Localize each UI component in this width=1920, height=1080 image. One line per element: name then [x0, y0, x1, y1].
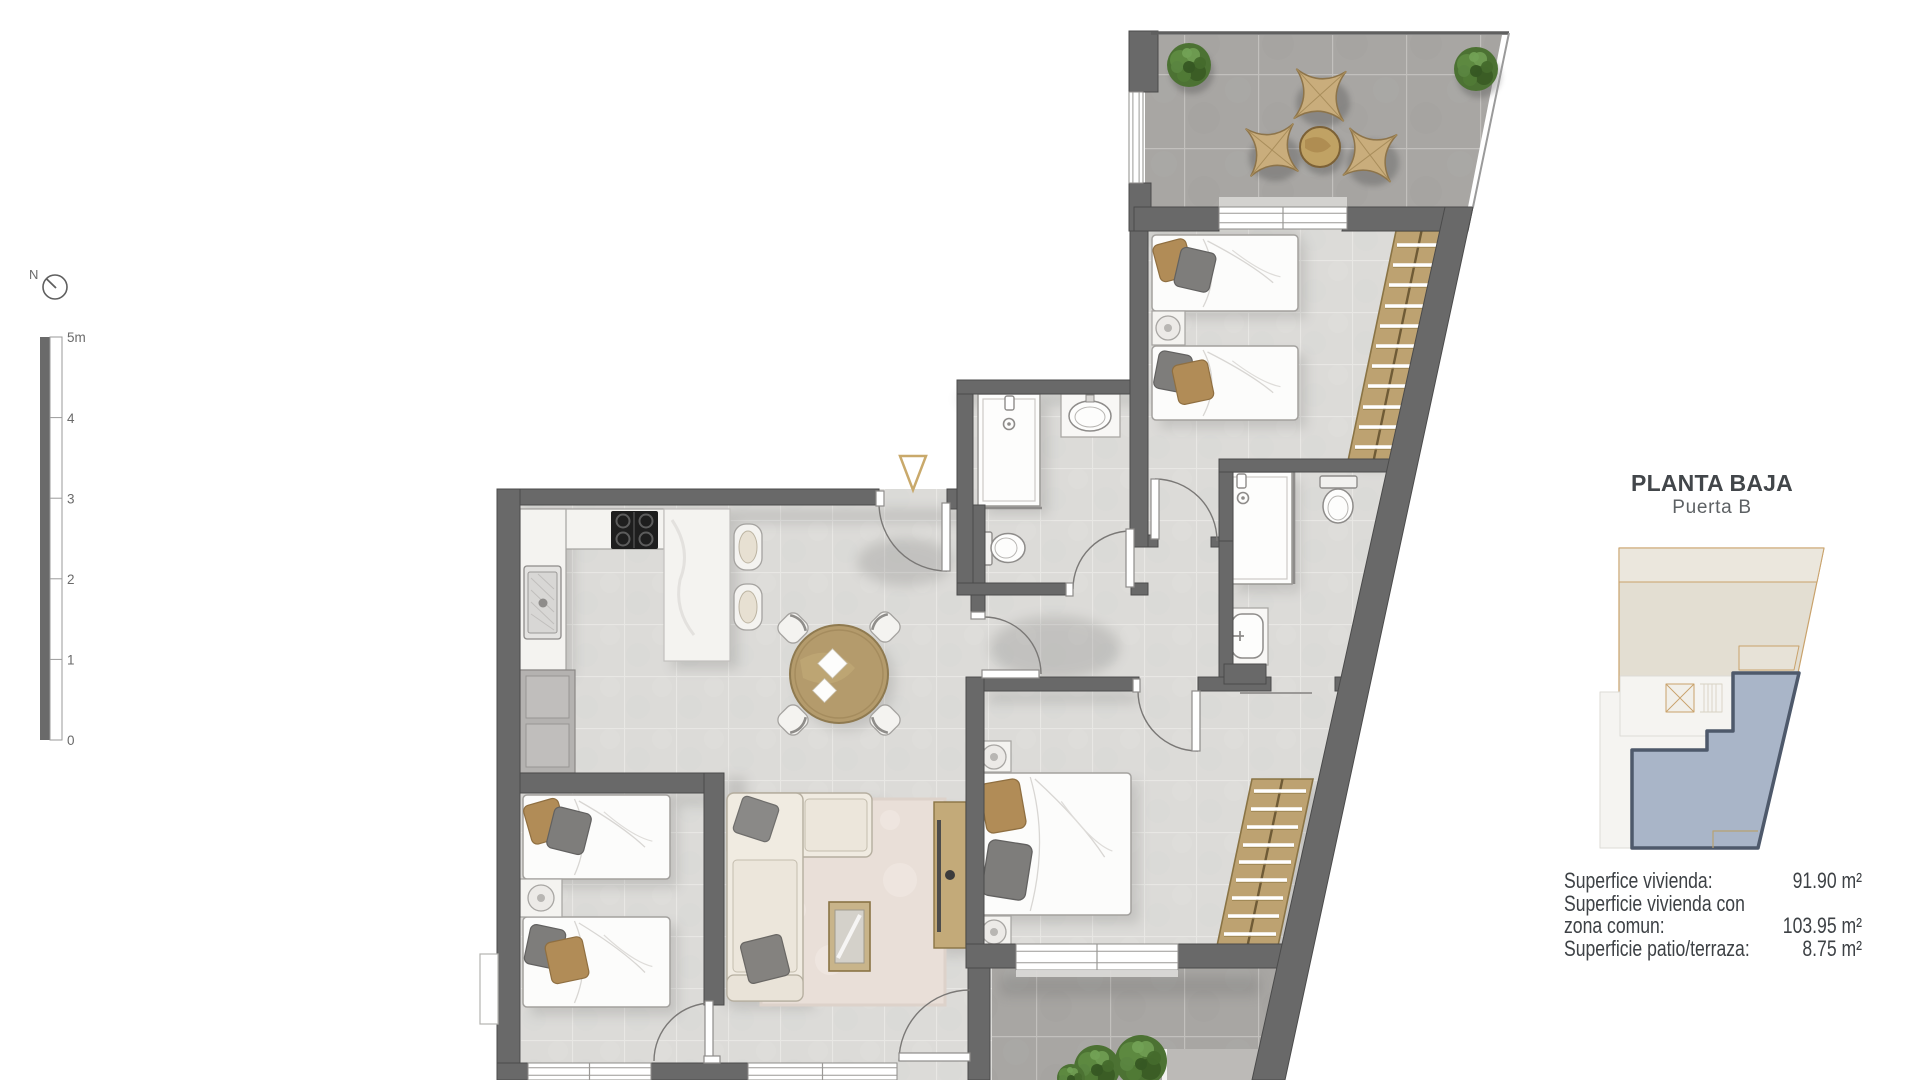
svg-text:4: 4	[67, 411, 75, 426]
svg-text:103.95 m²: 103.95 m²	[1783, 914, 1863, 938]
svg-text:zona comun:: zona comun:	[1564, 914, 1665, 938]
svg-text:Puerta B: Puerta B	[1672, 497, 1752, 518]
svg-text:8.75 m²: 8.75 m²	[1802, 937, 1862, 961]
svg-text:0: 0	[67, 733, 75, 748]
svg-text:Superficie patio/terraza:: Superficie patio/terraza:	[1564, 937, 1750, 961]
svg-text:Superfice vivienda:: Superfice vivienda:	[1564, 869, 1713, 893]
svg-text:Superficie vivienda con: Superficie vivienda con	[1564, 892, 1745, 916]
svg-text:PLANTA BAJA: PLANTA BAJA	[1631, 470, 1793, 496]
svg-text:5m: 5m	[67, 330, 86, 345]
svg-text:91.90 m²: 91.90 m²	[1793, 869, 1863, 893]
svg-text:1: 1	[67, 653, 75, 668]
svg-text:N: N	[29, 267, 38, 282]
svg-text:3: 3	[67, 492, 75, 507]
svg-text:2: 2	[67, 572, 75, 587]
